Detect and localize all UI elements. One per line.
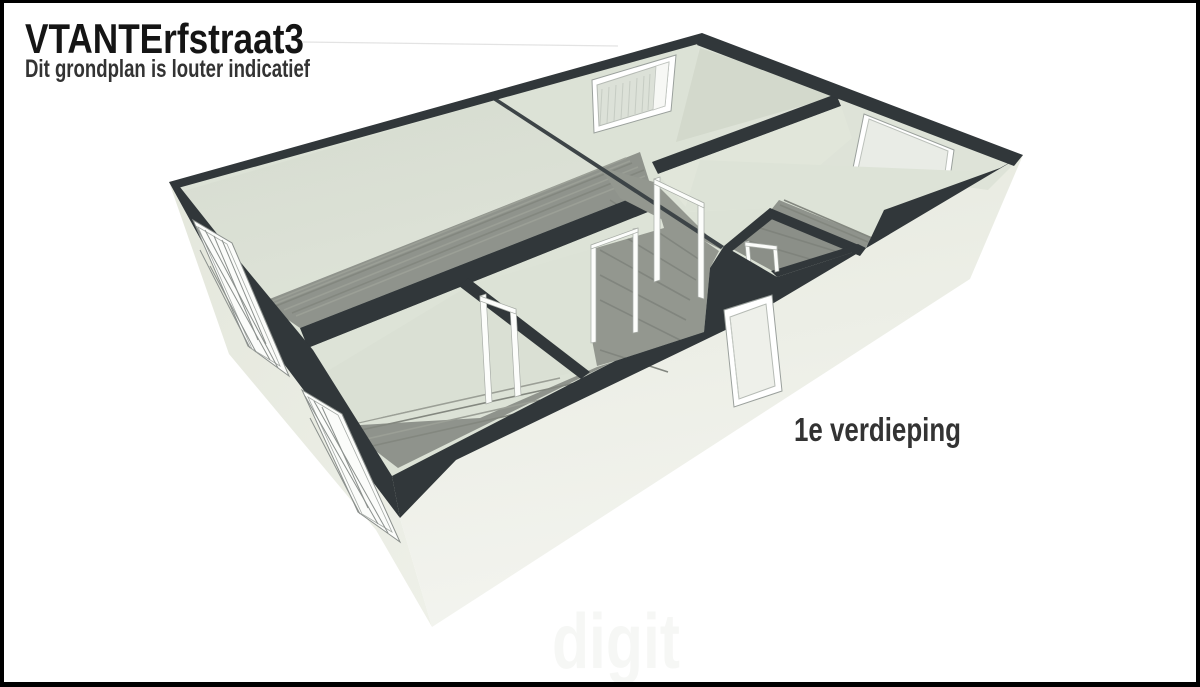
svg-text:1e verdieping: 1e verdieping [794,411,961,448]
svg-text:digit: digit [552,597,680,685]
svg-text:Dit grondplan is louter indica: Dit grondplan is louter indicatief [25,55,310,83]
